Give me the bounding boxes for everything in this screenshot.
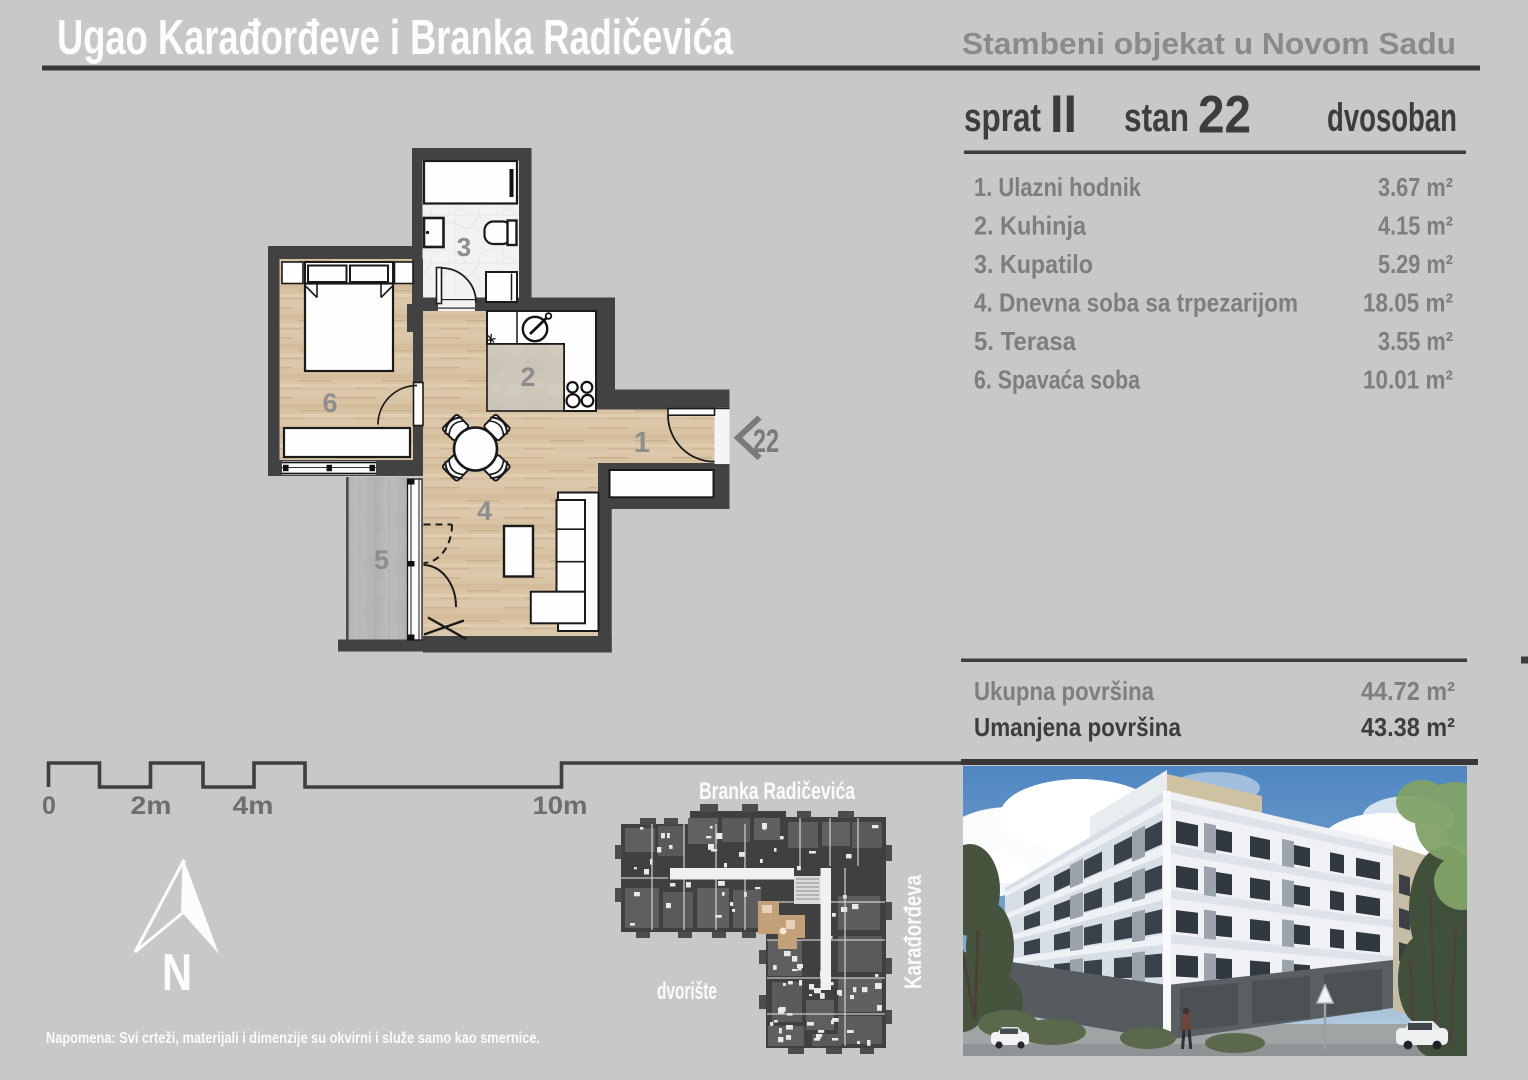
svg-text:6. Spavaća soba: 6. Spavaća soba xyxy=(974,365,1140,395)
svg-text:18.05 m²: 18.05 m² xyxy=(1363,288,1453,318)
svg-text:3.67 m²: 3.67 m² xyxy=(1378,172,1453,202)
svg-text:5: 5 xyxy=(374,545,389,575)
svg-text:1: 1 xyxy=(634,427,650,459)
svg-text:3. Kupatilo: 3. Kupatilo xyxy=(974,249,1093,279)
svg-text:3.55 m²: 3.55 m² xyxy=(1378,326,1453,356)
svg-text:2: 2 xyxy=(520,362,535,392)
svg-text:N: N xyxy=(162,944,192,1002)
svg-text:4. Dnevna soba sa trpezarijom: 4. Dnevna soba sa trpezarijom xyxy=(974,288,1298,318)
svg-text:4.15 m²: 4.15 m² xyxy=(1378,211,1453,241)
svg-text:10m: 10m xyxy=(533,792,588,820)
svg-text:1. Ulazni hodnik: 1. Ulazni hodnik xyxy=(974,172,1141,202)
svg-text:Branka Radičevića: Branka Radičevića xyxy=(699,778,855,805)
svg-text:0: 0 xyxy=(42,792,56,820)
svg-text:Ugao Karađorđeve i Branka Radi: Ugao Karađorđeve i Branka Radičevića xyxy=(57,11,734,65)
svg-text:II: II xyxy=(1050,85,1077,144)
svg-text:Stambeni objekat u Novom Sadu: Stambeni objekat u Novom Sadu xyxy=(962,26,1456,61)
svg-text:22: 22 xyxy=(1198,86,1251,145)
svg-text:Umanjena površina: Umanjena površina xyxy=(974,712,1181,742)
svg-text:6: 6 xyxy=(322,388,337,418)
svg-text:43.38 m²: 43.38 m² xyxy=(1361,712,1455,742)
svg-text:10.01 m²: 10.01 m² xyxy=(1363,365,1453,395)
svg-text:2m: 2m xyxy=(131,792,172,820)
svg-text:4: 4 xyxy=(477,496,492,526)
svg-text:dvorište: dvorište xyxy=(657,978,717,1005)
svg-text:44.72 m²: 44.72 m² xyxy=(1361,676,1455,706)
svg-text:4m: 4m xyxy=(233,792,274,820)
svg-text:Karađorđeva: Karađorđeva xyxy=(900,874,927,989)
svg-text:sprat: sprat xyxy=(964,96,1041,140)
svg-text:dvosoban: dvosoban xyxy=(1327,96,1457,140)
svg-text:3: 3 xyxy=(457,232,471,262)
svg-text:5.29 m²: 5.29 m² xyxy=(1378,249,1453,279)
svg-text:Ukupna površina: Ukupna površina xyxy=(974,676,1154,706)
svg-text:Napomena: Svi crteži, materija: Napomena: Svi crteži, materijali i dimen… xyxy=(46,1030,540,1047)
svg-text:2. Kuhinja: 2. Kuhinja xyxy=(974,211,1086,241)
svg-text:5. Terasa: 5. Terasa xyxy=(974,326,1076,356)
svg-text:stan: stan xyxy=(1124,96,1189,140)
svg-text:22: 22 xyxy=(753,423,779,459)
